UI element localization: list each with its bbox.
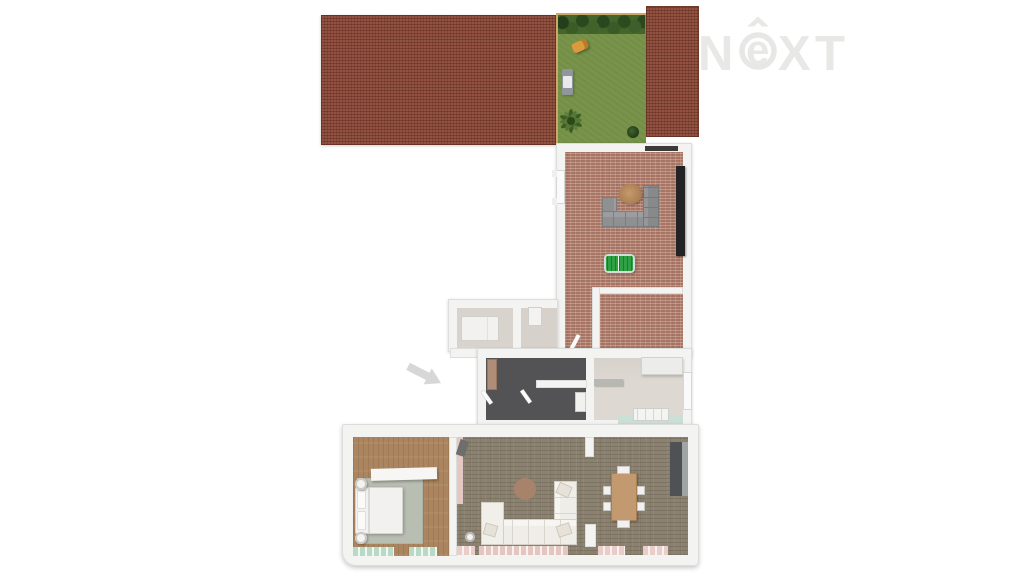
svg-text:T: T — [815, 27, 845, 74]
svg-text:X: X — [778, 27, 811, 74]
svg-text:e: e — [746, 26, 769, 73]
svg-text:N: N — [698, 27, 733, 74]
